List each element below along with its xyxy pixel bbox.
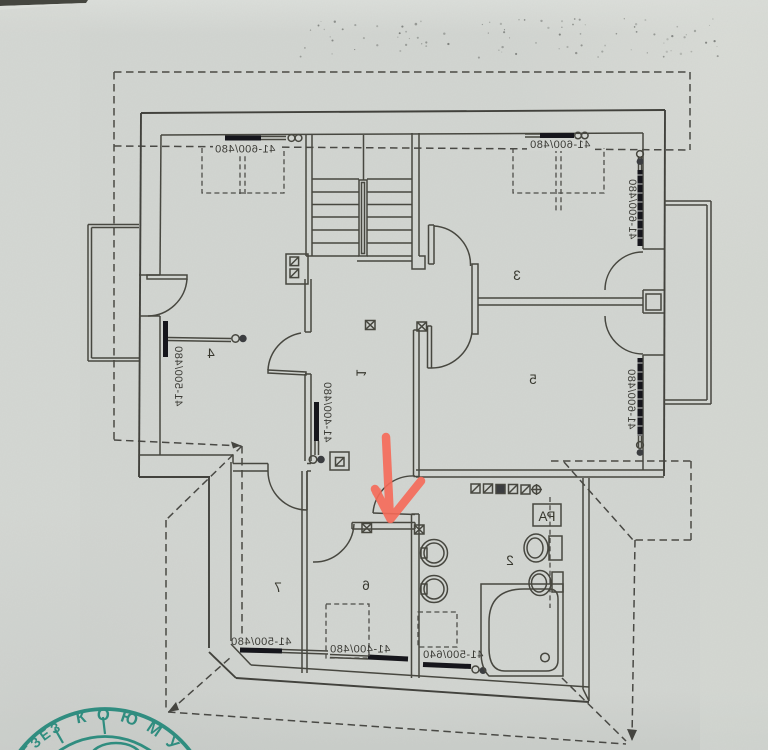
svg-text:4: 4 [207, 346, 215, 361]
svg-text:5: 5 [529, 372, 537, 387]
svg-text:41-500/480: 41-500/480 [231, 636, 292, 648]
svg-text:PA: PA [538, 509, 555, 524]
svg-text:3: 3 [513, 268, 521, 283]
svg-text:41-600/480: 41-600/480 [215, 144, 276, 156]
svg-text:41-400/480: 41-400/480 [321, 382, 333, 443]
svg-text:41-600/480: 41-600/480 [530, 139, 591, 151]
svg-text:7: 7 [274, 580, 282, 595]
svg-text:41-500/640: 41-500/640 [423, 649, 484, 661]
svg-text:2: 2 [506, 553, 514, 568]
svg-text:1: 1 [353, 369, 368, 377]
svg-text:6: 6 [362, 578, 370, 593]
svg-text:41-400/480: 41-400/480 [330, 644, 391, 656]
svg-text:41-600/480: 41-600/480 [626, 179, 638, 240]
svg-text:41-500/480: 41-500/480 [172, 346, 184, 407]
svg-text:41-600/480: 41-600/480 [625, 369, 637, 430]
